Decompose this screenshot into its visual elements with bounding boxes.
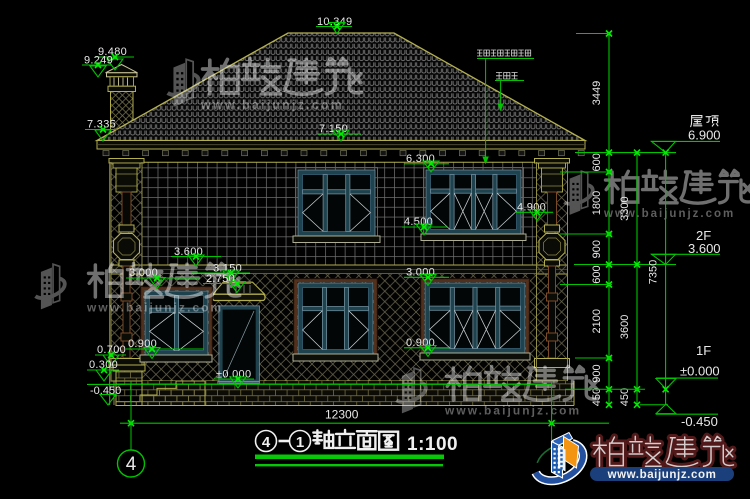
svg-text:450: 450 [619, 388, 631, 406]
svg-text:3.000: 3.000 [406, 267, 435, 279]
svg-text:6.900: 6.900 [688, 128, 721, 143]
svg-text:±0.000: ±0.000 [680, 364, 720, 379]
svg-text:3300: 3300 [619, 196, 631, 220]
svg-text:1800: 1800 [591, 191, 603, 215]
svg-text:1:100: 1:100 [407, 434, 458, 455]
svg-text:4.900: 4.900 [517, 202, 546, 214]
svg-text:450: 450 [591, 388, 603, 406]
svg-text:1: 1 [296, 434, 304, 451]
svg-text:www.baijunjz.com: www.baijunjz.com [86, 300, 223, 314]
svg-text:0.900: 0.900 [406, 337, 435, 349]
svg-text:900: 900 [591, 364, 603, 382]
svg-text:1F: 1F [696, 343, 711, 358]
svg-text:3449: 3449 [591, 81, 603, 105]
svg-text:4: 4 [262, 434, 271, 451]
svg-text:www.baijunjz.com: www.baijunjz.com [444, 403, 581, 417]
svg-text:4.500: 4.500 [404, 216, 433, 228]
svg-text:4: 4 [126, 454, 137, 475]
svg-text:-0.450: -0.450 [90, 385, 121, 397]
svg-text:12300: 12300 [325, 408, 359, 422]
svg-text:www.baijunjz.com: www.baijunjz.com [200, 98, 344, 112]
svg-text:-0.450: -0.450 [681, 414, 718, 429]
svg-text:7350: 7350 [648, 260, 660, 284]
svg-text:600: 600 [591, 153, 603, 171]
svg-text:600: 600 [591, 265, 603, 283]
svg-text:7.150: 7.150 [319, 123, 348, 135]
svg-text:900: 900 [591, 240, 603, 258]
svg-text:www.baijunjz.com: www.baijunjz.com [607, 469, 717, 481]
svg-text:2100: 2100 [591, 309, 603, 333]
svg-text:3600: 3600 [619, 315, 631, 339]
